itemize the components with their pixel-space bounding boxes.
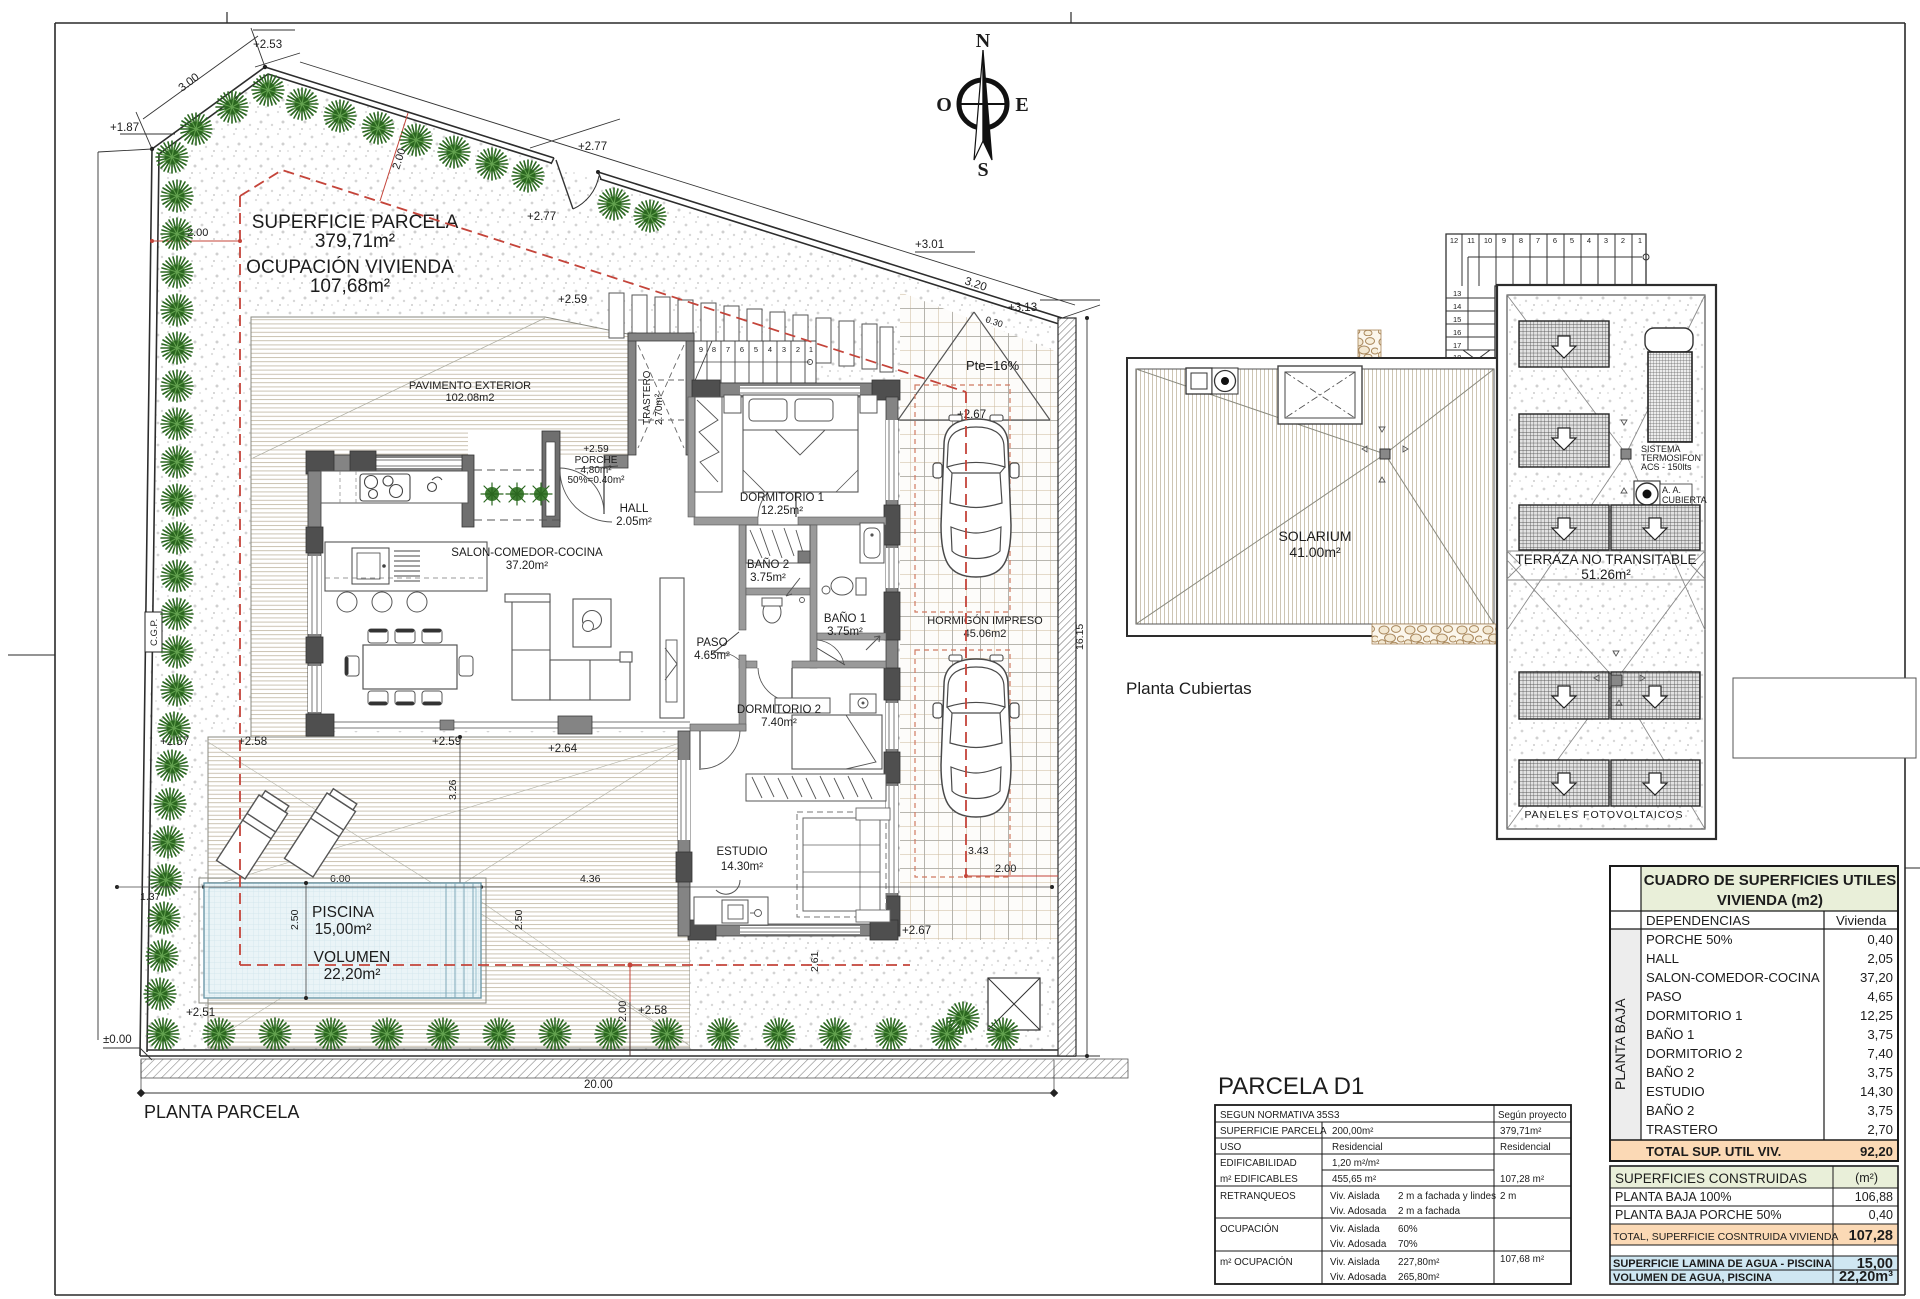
svg-text:TRASTERO: TRASTERO <box>642 370 653 425</box>
svg-text:41.00m²: 41.00m² <box>1289 544 1341 560</box>
svg-text:9: 9 <box>1502 236 1506 245</box>
svg-text:92,20: 92,20 <box>1860 1144 1893 1159</box>
svg-text:4.65m²: 4.65m² <box>694 650 730 662</box>
svg-text:2.61: 2.61 <box>809 951 821 972</box>
svg-text:+2.59: +2.59 <box>558 294 587 306</box>
svg-text:PISCINA: PISCINA <box>312 904 375 921</box>
svg-text:Planta Cubiertas: Planta Cubiertas <box>1126 679 1252 698</box>
svg-text:6: 6 <box>1553 236 1557 245</box>
svg-text:Residencial: Residencial <box>1500 1142 1551 1153</box>
svg-text:SUPERFICIES CONSTRUIDAS: SUPERFICIES CONSTRUIDAS <box>1615 1171 1807 1186</box>
svg-text:PLANTA BAJA 100%: PLANTA BAJA 100% <box>1615 1190 1732 1204</box>
svg-text:102.08m2: 102.08m2 <box>446 392 495 404</box>
svg-text:1: 1 <box>809 345 813 354</box>
svg-text:BAÑO 2: BAÑO 2 <box>1646 1065 1694 1080</box>
svg-text:20.00: 20.00 <box>584 1079 613 1091</box>
svg-text:HORMIGÓN IMPRESO: HORMIGÓN IMPRESO <box>927 614 1043 627</box>
svg-text:22,20m³: 22,20m³ <box>1839 1269 1893 1285</box>
svg-text:DORMITORIO 2: DORMITORIO 2 <box>737 704 821 716</box>
svg-text:107,68 m²: 107,68 m² <box>1500 1254 1545 1265</box>
svg-text:15,00m²: 15,00m² <box>315 921 372 938</box>
svg-text:5: 5 <box>754 345 758 354</box>
svg-text:2 m: 2 m <box>1500 1191 1516 1202</box>
svg-text:E: E <box>1015 94 1028 116</box>
svg-text:0,40: 0,40 <box>1869 1208 1893 1222</box>
svg-text:12: 12 <box>1450 236 1458 245</box>
svg-text:PAVIMENTO EXTERIOR: PAVIMENTO EXTERIOR <box>409 380 531 392</box>
svg-text:+3.01: +3.01 <box>915 239 944 251</box>
svg-text:2: 2 <box>796 345 800 354</box>
svg-text:5: 5 <box>1570 236 1574 245</box>
svg-text:106,88: 106,88 <box>1855 1190 1893 1204</box>
svg-text:+1.87: +1.87 <box>110 122 139 134</box>
svg-text:RETRANQUEOS: RETRANQUEOS <box>1220 1191 1296 1202</box>
svg-text:12.25m²: 12.25m² <box>761 505 803 517</box>
svg-text:VOLUMEN DE AGUA, PISCINA: VOLUMEN DE AGUA, PISCINA <box>1613 1272 1772 1284</box>
svg-text:0,40: 0,40 <box>1867 932 1893 947</box>
svg-text:SUPERFICIE PARCELA: SUPERFICIE PARCELA <box>1220 1126 1327 1137</box>
svg-text:37,20: 37,20 <box>1860 970 1893 985</box>
svg-text:3: 3 <box>1604 236 1608 245</box>
svg-text:37.20m²: 37.20m² <box>506 560 548 572</box>
svg-text:USO: USO <box>1220 1142 1242 1153</box>
svg-text:4,65: 4,65 <box>1867 989 1893 1004</box>
svg-text:BAÑO 1: BAÑO 1 <box>824 612 866 625</box>
svg-text:227,80m²: 227,80m² <box>1398 1257 1440 1268</box>
svg-text:14,30: 14,30 <box>1860 1084 1893 1099</box>
svg-text:PORCHE 50%: PORCHE 50% <box>1646 932 1733 947</box>
svg-text:ESTUDIO: ESTUDIO <box>1646 1084 1705 1099</box>
svg-text:7: 7 <box>1536 236 1540 245</box>
svg-text:Viv. Adosada: Viv. Adosada <box>1330 1239 1387 1250</box>
svg-text:SALON-COMEDOR-COCINA: SALON-COMEDOR-COCINA <box>451 547 603 559</box>
svg-text:DORMITORIO 1: DORMITORIO 1 <box>1646 1008 1742 1023</box>
svg-text:BAÑO 1: BAÑO 1 <box>1646 1027 1694 1042</box>
svg-text:SUPERFICIE LAMINA DE AGUA - PI: SUPERFICIE LAMINA DE AGUA - PISCINA <box>1613 1258 1832 1270</box>
svg-text:S: S <box>977 159 988 181</box>
svg-text:Viv. Aislada: Viv. Aislada <box>1330 1257 1380 1268</box>
svg-text:HALL: HALL <box>620 503 649 515</box>
svg-text:PANELES FOTOVOLTAICOS: PANELES FOTOVOLTAICOS <box>1524 809 1683 821</box>
svg-text:PARCELA D1: PARCELA D1 <box>1218 1073 1364 1100</box>
svg-text:Viv. Adosada: Viv. Adosada <box>1330 1272 1387 1283</box>
svg-text:2.50: 2.50 <box>289 909 301 930</box>
svg-text:CUADRO DE SUPERFICIES UTILES: CUADRO DE SUPERFICIES UTILES <box>1644 872 1897 889</box>
svg-text:379,71m²: 379,71m² <box>315 231 395 252</box>
svg-text:+3.13: +3.13 <box>1008 302 1037 314</box>
svg-text:14.30m²: 14.30m² <box>721 861 763 873</box>
svg-text:TOTAL SUP. UTIL VIV.: TOTAL SUP. UTIL VIV. <box>1646 1144 1781 1159</box>
svg-text:50%=0.40m²: 50%=0.40m² <box>568 475 626 486</box>
svg-text:PLANTA PARCELA: PLANTA PARCELA <box>144 1102 299 1122</box>
svg-text:PASO: PASO <box>1646 989 1682 1004</box>
svg-text:70%: 70% <box>1398 1239 1418 1250</box>
svg-text:EDIFICABILIDAD: EDIFICABILIDAD <box>1220 1158 1297 1169</box>
svg-text:2.00: 2.00 <box>995 863 1016 875</box>
svg-text:+2.77: +2.77 <box>527 211 556 223</box>
svg-text:1.37: 1.37 <box>140 891 161 903</box>
svg-text:PLANTA BAJA PORCHE 50%: PLANTA BAJA PORCHE 50% <box>1615 1208 1782 1222</box>
svg-text:VIVIENDA (m2): VIVIENDA (m2) <box>1717 892 1823 909</box>
svg-text:45.06m2: 45.06m2 <box>964 628 1007 640</box>
svg-text:2.70m²: 2.70m² <box>654 393 665 425</box>
svg-text:2,05: 2,05 <box>1867 951 1893 966</box>
svg-text:+2.53: +2.53 <box>253 39 282 51</box>
svg-text:16.15: 16.15 <box>1074 624 1086 650</box>
svg-text:+2.59: +2.59 <box>432 736 461 748</box>
svg-text:2,70: 2,70 <box>1867 1122 1893 1137</box>
svg-text:14: 14 <box>1453 302 1461 311</box>
svg-text:PASO: PASO <box>696 637 727 649</box>
svg-text:455,65 m²: 455,65 m² <box>1332 1174 1377 1185</box>
svg-text:HALL: HALL <box>1646 951 1679 966</box>
svg-text:Residencial: Residencial <box>1332 1142 1383 1153</box>
svg-text:+2.58: +2.58 <box>238 736 267 748</box>
svg-text:107,68m²: 107,68m² <box>310 276 390 297</box>
svg-text:Pte=16%: Pte=16% <box>966 358 1020 373</box>
svg-text:8: 8 <box>712 345 716 354</box>
svg-text:3,75: 3,75 <box>1867 1103 1893 1118</box>
svg-text:13: 13 <box>1453 289 1461 298</box>
svg-text:15: 15 <box>1453 315 1461 324</box>
svg-text:4.36: 4.36 <box>580 873 601 885</box>
svg-text:12,25: 12,25 <box>1860 1008 1893 1023</box>
svg-text:265,80m²: 265,80m² <box>1398 1272 1440 1283</box>
svg-text:200,00m²: 200,00m² <box>1332 1126 1374 1137</box>
svg-text:3.26: 3.26 <box>447 779 459 800</box>
svg-text:60%: 60% <box>1398 1224 1418 1235</box>
svg-text:10: 10 <box>1484 236 1492 245</box>
svg-text:SOLARIUM: SOLARIUM <box>1278 528 1351 544</box>
svg-text:6: 6 <box>740 345 744 354</box>
svg-text:3,75: 3,75 <box>1867 1065 1893 1080</box>
svg-text:Viv. Adosada: Viv. Adosada <box>1330 1206 1387 1217</box>
svg-text:3: 3 <box>782 345 786 354</box>
svg-text:CUBIERTA: CUBIERTA <box>1662 495 1707 505</box>
svg-text:DEPENDENCIAS: DEPENDENCIAS <box>1646 913 1750 928</box>
svg-text:DORMITORIO 1: DORMITORIO 1 <box>740 492 824 504</box>
svg-text:+2.51: +2.51 <box>186 1007 215 1019</box>
svg-text:51.26m²: 51.26m² <box>1581 567 1631 582</box>
svg-text:2.00: 2.00 <box>617 1001 629 1022</box>
svg-text:17: 17 <box>1453 341 1461 350</box>
svg-text:Vivienda: Vivienda <box>1836 913 1887 928</box>
svg-text:9: 9 <box>699 345 703 354</box>
svg-text:±0.00: ±0.00 <box>103 1034 132 1046</box>
svg-text:3.75m²: 3.75m² <box>827 626 863 638</box>
svg-text:7.40m²: 7.40m² <box>761 717 797 729</box>
svg-text:A. A.: A. A. <box>1662 485 1681 495</box>
svg-text:C.G.P.: C.G.P. <box>149 619 160 646</box>
svg-text:+2.77: +2.77 <box>578 141 607 153</box>
svg-text:16: 16 <box>1453 328 1461 337</box>
svg-text:7,40: 7,40 <box>1867 1046 1893 1061</box>
svg-text:ACS - 150lts: ACS - 150lts <box>1641 462 1692 472</box>
svg-text:SEGUN NORMATIVA 35S3: SEGUN NORMATIVA 35S3 <box>1220 1110 1340 1121</box>
svg-text:OCUPACIÓN: OCUPACIÓN <box>1220 1224 1279 1235</box>
svg-text:4: 4 <box>1587 236 1591 245</box>
svg-text:OCUPACIÓN VIVIENDA: OCUPACIÓN VIVIENDA <box>246 256 454 278</box>
svg-text:2.05m²: 2.05m² <box>616 516 652 528</box>
svg-text:1,20 m²/m²: 1,20 m²/m² <box>1332 1158 1380 1169</box>
svg-text:107,28: 107,28 <box>1849 1228 1893 1244</box>
svg-text:11: 11 <box>1467 236 1475 245</box>
svg-text:107,28 m²: 107,28 m² <box>1500 1174 1545 1185</box>
svg-text:ESTUDIO: ESTUDIO <box>716 846 767 858</box>
svg-text:+2.64: +2.64 <box>548 743 578 755</box>
svg-text:8: 8 <box>1519 236 1523 245</box>
svg-text:BAÑO 2: BAÑO 2 <box>1646 1103 1694 1118</box>
svg-text:22,20m²: 22,20m² <box>324 966 381 983</box>
svg-text:DORMITORIO 2: DORMITORIO 2 <box>1646 1046 1742 1061</box>
svg-text:Según proyecto: Según proyecto <box>1498 1110 1567 1121</box>
svg-text:TOTAL, SUPERFICIE COSNTRUIDA V: TOTAL, SUPERFICIE COSNTRUIDA VIVIENDA <box>1613 1231 1838 1243</box>
svg-text:N: N <box>976 30 991 52</box>
svg-text:TRASTERO: TRASTERO <box>1646 1122 1718 1137</box>
svg-text:+2.67: +2.67 <box>902 925 931 937</box>
svg-text:2 m a fachada y lindes: 2 m a fachada y lindes <box>1398 1191 1496 1202</box>
svg-text:7: 7 <box>726 345 730 354</box>
svg-text:3.75m²: 3.75m² <box>750 572 786 584</box>
svg-text:4: 4 <box>768 345 772 354</box>
svg-text:(m²): (m²) <box>1855 1171 1878 1185</box>
svg-text:O: O <box>936 94 952 116</box>
svg-text:3.43: 3.43 <box>968 845 989 857</box>
svg-text:+2.59: +2.59 <box>583 444 609 455</box>
svg-text:m² OCUPACIÓN: m² OCUPACIÓN <box>1220 1257 1293 1268</box>
svg-text:TERRAZA NO TRANSITABLE: TERRAZA NO TRANSITABLE <box>1515 552 1696 567</box>
svg-text:+2.58: +2.58 <box>638 1005 667 1017</box>
svg-text:PLANTA BAJA: PLANTA BAJA <box>1612 998 1628 1090</box>
svg-text:SALON-COMEDOR-COCINA: SALON-COMEDOR-COCINA <box>1646 970 1820 985</box>
svg-text:m² EDIFICABLES: m² EDIFICABLES <box>1220 1174 1298 1185</box>
svg-text:SUPERFICIE PARCELA: SUPERFICIE PARCELA <box>252 212 459 233</box>
svg-text:2 m a fachada: 2 m a fachada <box>1398 1206 1461 1217</box>
svg-text:VOLUMEN: VOLUMEN <box>314 949 391 966</box>
svg-text:2.50: 2.50 <box>513 909 525 930</box>
svg-text:Viv. Aislada: Viv. Aislada <box>1330 1191 1380 1202</box>
svg-text:1: 1 <box>1638 236 1642 245</box>
svg-text:2: 2 <box>1621 236 1625 245</box>
svg-text:3,75: 3,75 <box>1867 1027 1893 1042</box>
svg-text:379,71m²: 379,71m² <box>1500 1126 1542 1137</box>
svg-text:Viv. Aislada: Viv. Aislada <box>1330 1224 1380 1235</box>
svg-text:BAÑO 2: BAÑO 2 <box>747 558 789 571</box>
